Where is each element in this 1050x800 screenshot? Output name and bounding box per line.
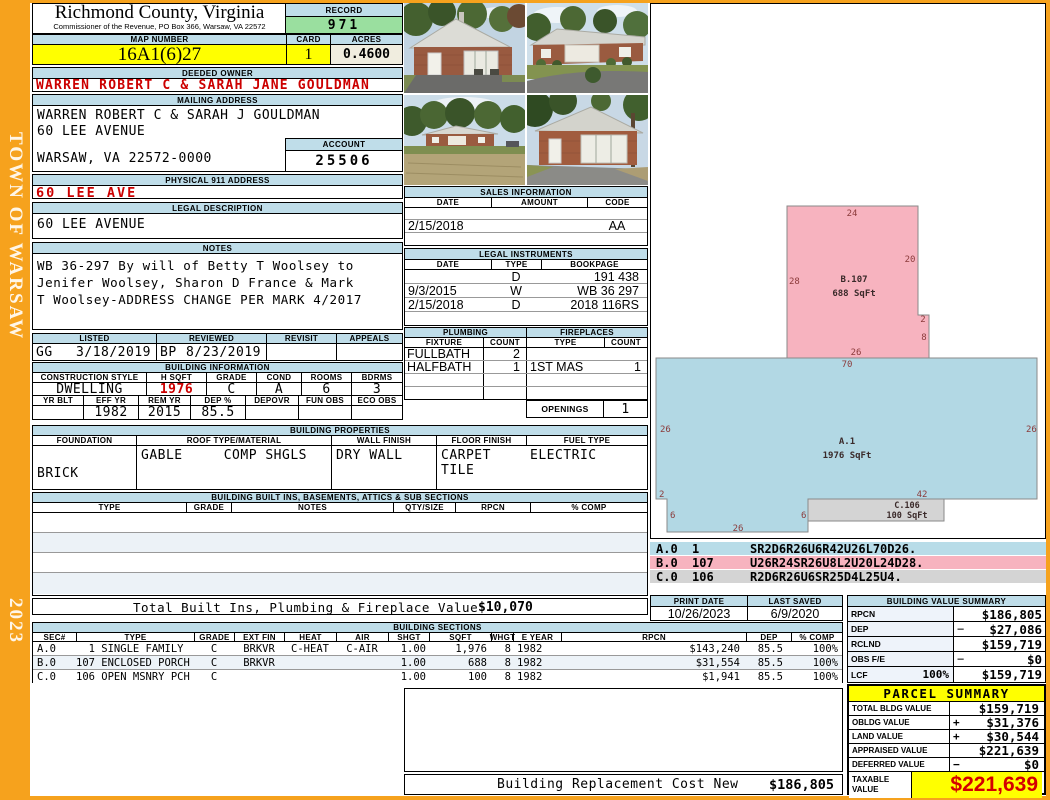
taxable-value-label: TAXABLE VALUE [849,772,911,798]
acres-label: ACRES [330,35,402,44]
plumbing-count [483,387,526,399]
effyr-value: 1982 [83,406,138,419]
legend-vector: U26R24SR26U8L2U20L24D28. [750,556,923,570]
deeded-owner-name: WARREN ROBERT C & SARAH JANE GOULDMAN [33,79,402,92]
col-whgt: WHGT [491,633,513,641]
sales-row-code: AA [587,220,647,232]
built-ins-label: BUILDING BUILT INS, BASEMENTS, ATTICS & … [33,493,647,503]
floor-finish-value-1: CARPET [437,446,526,463]
cell-eyear: 1982 [513,670,561,684]
instr-row-type: W [491,284,541,297]
funobs-value [298,406,351,419]
fixture-label: FIXTURE [405,338,483,347]
sales-row-amount [491,208,587,219]
cell-shgt: 1.00 [388,656,429,669]
revisit-value [266,344,336,360]
notes-label: NOTES [33,243,402,254]
print-dates-block: PRINT DATE LAST SAVED 10/26/2023 6/9/202… [650,595,843,621]
sales-info-block: SALES INFORMATION DATE AMOUNT CODE 2/15/… [404,186,648,246]
fireplaces-label: FIREPLACES [526,328,647,337]
instr-row-date: 2/15/2018 [405,298,491,311]
account-value: 25506 [286,151,402,171]
remyr-label: REM YR [138,396,190,405]
col-grade: GRADE [194,633,234,641]
plumbing-count-label: COUNT [483,338,526,347]
cell-sqft: 100 [429,670,491,684]
cell-eyear: 1982 [513,642,561,655]
parcel-row-value: $221,639 [979,743,1042,758]
parcel-row-op: + [953,730,960,743]
cell-rpcn: $31,554 [561,656,746,669]
building-value-summary: BUILDING VALUE SUMMARY RPCN $186,805 DEP… [847,595,1046,683]
sales-date-label: DATE [405,198,491,207]
house-distant-view [404,95,525,185]
listed-date: 3/18/2019 [76,345,151,360]
fireplace-count-label: COUNT [604,338,647,347]
card-value: 1 [286,45,330,64]
section-row-a: A.0 1 SINGLE FAMILY C BRKVR C-HEAT C-AIR… [33,642,842,656]
fireplace-count [604,374,647,386]
parcel-summary: PARCEL SUMMARY TOTAL BLDG VALUE $159,719… [847,684,1046,795]
legend-sec: C.0 [650,570,692,584]
cell-comp: 100% [791,642,842,655]
effyr-label: EFF YR [83,396,138,405]
property-photo-2 [527,3,648,93]
summary-row-label: RCLND [851,639,881,649]
bottom-empty-box [404,688,843,772]
ecoobs-label: ECO OBS [351,396,402,405]
cell-air [336,670,388,684]
legal-description-block: LEGAL DESCRIPTION 60 LEE AVENUE [32,202,403,239]
review-block: LISTED REVIEWED REVISIT APPEALS GG 3/18/… [32,333,403,361]
legend-code: 1 [692,542,750,556]
cell-rpcn: $1,941 [561,670,746,684]
cell-heat [284,670,336,684]
depovr-value [245,406,298,419]
legend-sec: B.0 [650,556,692,570]
wall-finish-value: DRY WALL [331,446,436,489]
fuel-type-label: FUEL TYPE [526,436,647,445]
replacement-cost-row: Building Replacement Cost New $186,805 [404,774,843,795]
dim-label: 26 [660,425,671,435]
cell-comp: 100% [791,670,842,684]
property-photo-1 [404,3,525,93]
builtins-qty-label: QTY/SIZE [393,503,455,512]
legend-code: 106 [692,570,750,584]
dep-pct-label: DEP % [190,396,245,405]
sketch-section-a-id: A.1 [839,437,855,447]
funobs-label: FUN OBS [298,396,351,405]
dim-label: 20 [905,255,916,265]
print-date-value: 10/26/2023 [651,607,747,620]
plumbing-fixture: HALFBATH [405,361,483,373]
notes-line-2: Jenifer Woolsey, Sharon D France & Mark [37,274,402,291]
col-air: AIR [336,633,388,641]
deeded-owner-block: DEEDED OWNER WARREN ROBERT C & SARAH JAN… [32,67,403,92]
total-built-ins-value: $10,070 [478,600,533,615]
builtins-notes-label: NOTES [231,503,393,512]
house-porch-view [527,95,648,185]
plumbing-count [483,374,526,386]
cell-comp: 100% [791,656,842,669]
parcel-row-op: + [953,716,960,729]
legend-vector: R2D6R26U6SR25D4L25U4. [750,570,902,584]
cell-grade: C [194,656,234,669]
section-row-c: C.0 106 OPEN MSNRY PCH C 1.00 100 8 1982… [33,670,842,684]
year-label: 2023 [4,598,26,668]
legend-sec: A.0 [650,542,692,556]
building-sections-table: BUILDING SECTIONS SEC# TYPE GRADE EXT FI… [32,622,843,683]
fireplace-count: 1 [604,361,647,373]
sketch-section-c-id: C.106 [894,501,920,511]
cell-whgt: 8 [491,642,513,655]
sketch-section-b-id: B.107 [840,275,867,285]
builtins-grade-label: GRADE [186,503,231,512]
building-sections-label: BUILDING SECTIONS [33,623,842,633]
foundation-label: FOUNDATION [33,436,136,445]
yrblt-label: YR BLT [33,396,83,405]
cell-type: 106 OPEN MSNRY PCH [76,670,194,684]
builtins-empty-row [33,533,647,553]
col-rpcn: RPCN [561,633,746,641]
sales-row-code [587,233,647,245]
cell-shgt: 1.00 [388,642,429,655]
map-number-block: MAP NUMBER CARD ACRES 16A1(6)27 1 0.4600 [32,34,403,65]
cell-dep: 85.5 [746,642,791,655]
summary-row-op: − [957,652,964,666]
cell-heat [284,656,336,669]
sketch-legend-b: B.0 107 U26R24SR26U8L2U20L24D28. [650,556,1046,569]
cell-air [336,656,388,669]
builtins-empty-row [33,553,647,573]
mailing-address-block: MAILING ADDRESS WARREN ROBERT C & SARAH … [32,94,403,172]
cell-whgt: 8 [491,670,513,684]
sales-code-label: CODE [587,198,647,207]
county-subtitle: Commissioner of the Revenue, PO Box 366,… [33,22,286,31]
builtins-rpcn-label: RPCN [455,503,530,512]
builtins-empty-row [33,513,647,533]
fuel-type-value: ELECTRIC [526,446,647,489]
parcel-row-label: APPRAISED VALUE [849,744,949,757]
summary-row-value: $186,805 [982,607,1045,622]
fireplace-count [604,348,647,360]
parcel-row-label: DEFERRED VALUE [849,758,949,771]
openings-value: 1 [603,401,647,417]
notes-line-1: WB 36-297 By will of Betty T Woolsey to [37,257,402,274]
openings-label: OPENINGS [527,401,603,417]
dim-label: 28 [789,277,800,287]
instr-row-date [405,270,491,283]
revisit-label: REVISIT [266,334,336,343]
taxable-value: $221,639 [911,772,1042,798]
col-sqft: SQFT [429,633,491,641]
roof-material-value: COMP SHGLS [224,448,307,463]
physical-address-value: 60 LEE AVE [33,186,402,199]
cell-type: 107 ENCLOSED PORCH [76,656,194,669]
grade-value: C [206,383,256,395]
record-label: RECORD [286,4,402,17]
col-extfin: EXT FIN [234,633,284,641]
cell-extfin [234,670,284,684]
cell-sqft: 688 [429,656,491,669]
building-properties-block: BUILDING PROPERTIES FOUNDATION ROOF TYPE… [32,425,648,490]
floor-finish-label: FLOOR FINISH [436,436,526,445]
plumbing-fixture: FULLBATH [405,348,483,360]
remyr-value: 2015 [138,406,190,419]
sketch-section-c-sqft: 100 SqFt [887,511,928,521]
col-eyear: E YEAR [513,633,561,641]
cell-eyear: 1982 [513,656,561,669]
parcel-summary-label: PARCEL SUMMARY [849,686,1044,702]
reviewed-date: 8/23/2019 [186,345,261,360]
dim-label: 6 [670,511,675,521]
acres-value: 0.4600 [330,45,402,64]
plumbing-fixture [405,374,483,386]
col-type: TYPE [76,633,194,641]
instr-bookpage-label: BOOKPAGE [541,260,647,269]
dim-label: 42 [917,490,928,500]
cond-value: A [256,383,301,395]
cell-sec: B.0 [33,656,76,669]
sketch-legend-a: A.0 1 SR2D6R26U6R42U26L70D26. [650,542,1046,555]
appeals-label: APPEALS [336,334,402,343]
card-label: CARD [286,35,330,44]
parcel-row-op: − [953,758,960,771]
cell-sqft: 1,976 [429,642,491,655]
property-photo-4 [527,95,648,185]
account-label: ACCOUNT [286,139,402,151]
value-summary-label: BUILDING VALUE SUMMARY [848,596,1045,607]
sales-amount-label: AMOUNT [491,198,587,207]
cell-heat: C-HEAT [284,642,336,655]
rooms-value: 6 [301,383,351,395]
plumbing-label: PLUMBING [405,328,526,337]
builtins-type-label: TYPE [33,503,186,512]
foundation-value: BRICK [33,446,136,489]
builtins-comp-label: % COMP [530,503,647,512]
construction-style-value: DWELLING [33,383,146,395]
legal-instruments-block: LEGAL INSTRUMENTS DATE TYPE BOOKPAGE D 1… [404,248,648,326]
plumbing-fixture [405,387,483,399]
notes-line-3: T Woolsey-ADDRESS CHANGE PER MARK 4/2017 [37,291,402,308]
depovr-label: DEPOVR [245,396,298,405]
fireplace-type [526,374,604,386]
parcel-row-value: $159,719 [979,701,1042,716]
cell-extfin: BRKVR [234,656,284,669]
instr-row-bookpage: 2018 116RS [541,298,647,311]
sales-row-amount [491,220,587,232]
instr-type-label: TYPE [491,260,541,269]
property-record-card: TOWN OF WARSAW 2023 Richmond County, Vir… [0,0,1050,800]
cell-grade: C [194,642,234,655]
cell-type: 1 SINGLE FAMILY [76,642,194,655]
cell-grade: C [194,670,234,684]
fireplace-type [526,387,604,399]
wall-finish-label: WALL FINISH [331,436,436,445]
replacement-cost-label: Building Replacement Cost New [497,777,738,792]
plumbing-count: 1 [483,361,526,373]
instr-row-type: D [491,270,541,283]
house-angle-view [527,3,648,93]
listed-initials: GG [36,345,53,360]
cell-air: C-AIR [336,642,388,655]
col-dep: DEP [746,633,791,641]
dim-label: 8 [921,333,926,343]
sales-row-date: 2/15/2018 [405,220,491,232]
plumbing-count: 2 [483,348,526,360]
legend-vector: SR2D6R26U6R42U26L70D26. [750,542,916,556]
last-saved-label: LAST SAVED [747,596,842,606]
total-built-ins-label: Total Built Ins, Plumbing & Fireplace Va… [133,600,478,615]
section-row-b: B.0 107 ENCLOSED PORCH C BRKVR 1.00 688 … [33,656,842,670]
building-info-block: BUILDING INFORMATION CONSTRUCTION STYLE … [32,362,403,420]
dim-label: 26 [851,348,862,358]
appeals-value [336,344,402,360]
town-label: TOWN OF WARSAW [4,132,26,422]
dim-label: 2 [659,490,664,500]
sales-row-code [587,208,647,219]
record-value: 971 [286,17,402,33]
yrblt-value [33,406,83,419]
county-header: Richmond County, Virginia Commissioner o… [32,3,403,34]
mailing-address-label: MAILING ADDRESS [33,95,402,106]
floor-finish-value-2: TILE [437,463,526,478]
building-properties-label: BUILDING PROPERTIES [33,426,647,436]
total-built-ins-row: Total Built Ins, Plumbing & Fireplace Va… [32,598,648,615]
dim-label: 2 [920,315,925,325]
instr-date-label: DATE [405,260,491,269]
parcel-row-value: $0 [1024,757,1042,772]
dim-label: 26 [1026,425,1037,435]
col-comp: % COMP [791,633,842,641]
mailing-line-1: WARREN ROBERT C & SARAH J GOULDMAN [33,106,402,124]
col-sec: SEC# [33,633,76,641]
sales-row-date [405,208,491,219]
notes-block: NOTES WB 36-297 By will of Betty T Wools… [32,242,403,330]
fireplace-type [526,348,604,360]
legal-description-value: 60 LEE AVENUE [33,214,402,232]
property-photo-3 [404,95,525,185]
cell-sec: C.0 [33,670,76,684]
cell-dep: 85.5 [746,670,791,684]
summary-row-label: OBS F/E [851,654,885,664]
reviewed-label: REVIEWED [156,334,266,343]
sketch-canvas: 24 20 28 2 8 26 B.107 688 SqFt 70 26 26 … [650,3,1046,539]
parcel-row-label: LAND VALUE [849,730,949,743]
cell-whgt: 8 [491,656,513,669]
cell-dep: 85.5 [746,656,791,669]
col-heat: HEAT [284,633,336,641]
hsqft-value: 1976 [146,383,206,395]
built-ins-block: BUILDING BUILT INS, BASEMENTS, ATTICS & … [32,492,648,596]
summary-row-pct: 100% [923,668,950,681]
bdrms-value: 3 [351,383,402,395]
legal-instruments-label: LEGAL INSTRUMENTS [405,249,647,260]
builtins-empty-row [33,573,647,594]
instr-row-type [491,312,541,324]
county-title: Richmond County, Virginia [33,4,286,22]
parcel-row-label: OBLDG VALUE [849,716,949,729]
dim-label: 70 [842,360,853,370]
instr-row-date [405,312,491,324]
summary-row-value: $27,086 [989,622,1045,637]
sales-info-label: SALES INFORMATION [405,187,647,198]
physical-address-block: PHYSICAL 911 ADDRESS 60 LEE AVE [32,174,403,199]
fireplace-count [604,387,647,399]
roof-label: ROOF TYPE/MATERIAL [136,436,331,445]
parcel-row-label: TOTAL BLDG VALUE [849,702,949,715]
sales-row-date [405,233,491,245]
sales-row-amount [491,233,587,245]
cell-sec: A.0 [33,642,76,655]
house-front-view [404,3,525,93]
summary-row-label: LCF [851,670,868,680]
instr-row-bookpage: WB 36 297 [541,284,647,297]
sketch-section-b-sqft: 688 SqFt [832,289,875,299]
reviewed-initials: BP [160,345,177,360]
dim-label: 6 [801,511,806,521]
summary-row-value: $159,719 [982,637,1045,652]
summary-row-op: − [957,622,964,636]
legend-code: 107 [692,556,750,570]
openings-row: OPENINGS 1 [526,400,648,418]
summary-row-label: DEP [851,624,868,634]
map-number-value: 16A1(6)27 [33,45,286,64]
summary-row-label: RPCN [851,609,875,619]
sketch-legend-c: C.0 106 R2D6R26U6SR25D4L25U4. [650,570,1046,583]
dim-label: 24 [847,209,858,219]
dep-pct-value: 85.5 [190,406,245,419]
cell-extfin: BRKVR [234,642,284,655]
fireplace-type-label: TYPE [526,338,604,347]
fireplace-type: 1ST MAS [526,361,604,373]
cell-rpcn: $143,240 [561,642,746,655]
building-info-label: BUILDING INFORMATION [33,363,402,373]
parcel-row-value: $30,544 [986,729,1042,744]
instr-row-bookpage [541,312,647,324]
col-shgt: SHGT [388,633,429,641]
parcel-row-value: $31,376 [986,715,1042,730]
listed-label: LISTED [33,334,156,343]
last-saved-value: 6/9/2020 [747,607,842,620]
instr-row-bookpage: 191 438 [541,270,647,283]
sketch-section-a-sqft: 1976 SqFt [823,451,872,461]
legal-description-label: LEGAL DESCRIPTION [33,203,402,214]
summary-row-value: $159,719 [982,667,1045,682]
dim-label: 26 [733,524,744,534]
summary-row-value: $0 [1027,652,1045,667]
instr-row-date: 9/3/2015 [405,284,491,297]
instr-row-type: D [491,298,541,311]
cell-shgt: 1.00 [388,670,429,684]
roof-type-value: GABLE [141,448,183,463]
ecoobs-value [351,406,402,419]
building-sketch: 24 20 28 2 8 26 B.107 688 SqFt 70 26 26 … [651,4,1045,538]
replacement-cost-value: $186,805 [769,777,834,793]
account-block: ACCOUNT 25506 [285,138,402,171]
plumbing-fireplaces-block: PLUMBING FIREPLACES FIXTURE COUNT TYPE C… [404,327,648,400]
print-date-label: PRINT DATE [651,596,747,606]
